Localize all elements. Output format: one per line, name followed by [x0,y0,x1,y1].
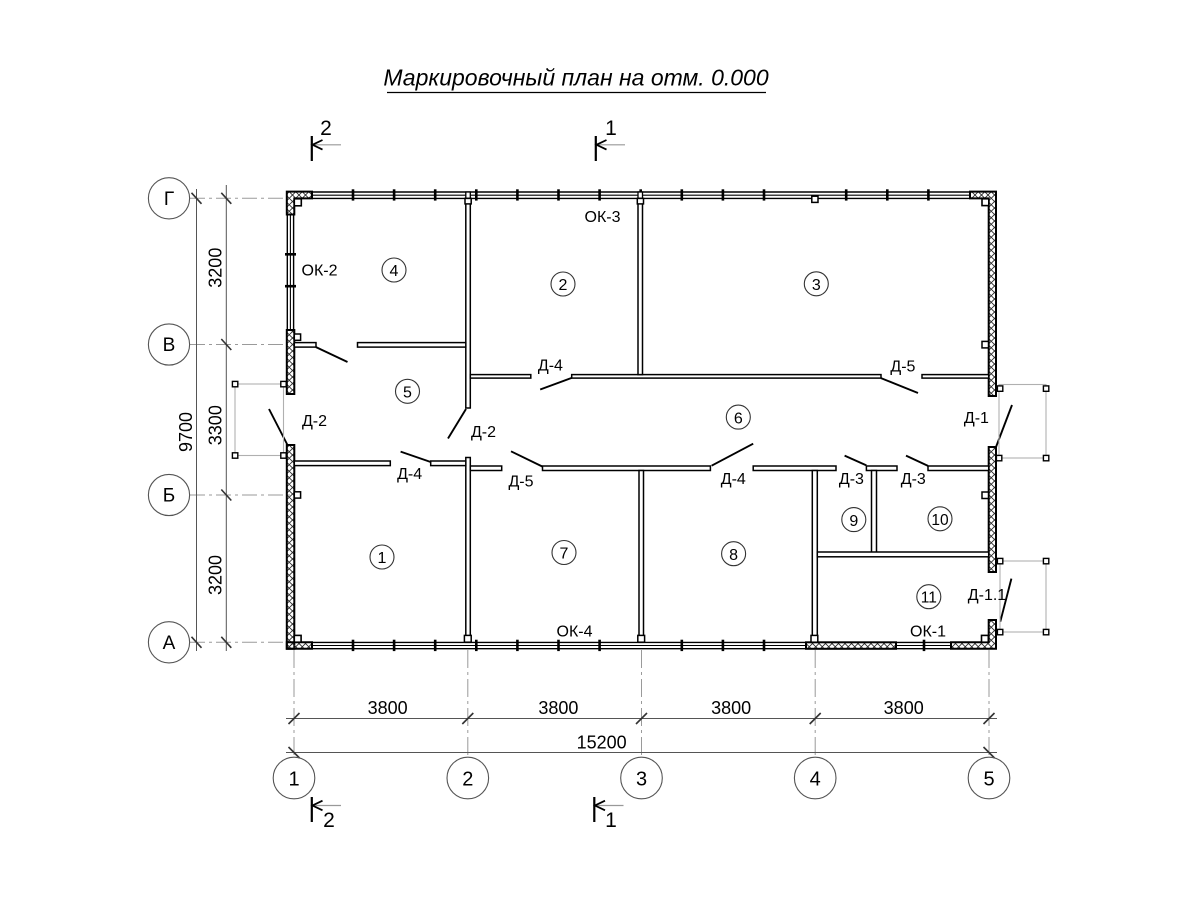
svg-text:Д-4: Д-4 [397,466,422,483]
svg-text:3800: 3800 [711,698,751,718]
svg-text:3800: 3800 [368,698,408,718]
svg-text:7: 7 [560,545,569,562]
svg-text:Маркировочный план на отм. 0.0: Маркировочный план на отм. 0.000 [383,65,768,91]
svg-text:9700: 9700 [176,412,196,452]
svg-text:11: 11 [921,590,937,607]
svg-text:Д-3: Д-3 [839,471,864,488]
svg-text:ОК-3: ОК-3 [585,209,621,226]
svg-text:1: 1 [378,550,387,567]
svg-text:15200: 15200 [577,732,627,752]
svg-text:Д-2: Д-2 [302,413,327,430]
svg-text:Г: Г [164,189,174,210]
svg-text:Д-4: Д-4 [721,471,746,488]
svg-text:3200: 3200 [206,555,226,595]
svg-text:ОК-1: ОК-1 [910,623,946,640]
svg-text:Д-3: Д-3 [901,471,926,488]
svg-text:3300: 3300 [206,405,226,445]
svg-text:ОК-2: ОК-2 [302,262,338,279]
svg-text:1: 1 [605,117,617,140]
svg-text:2: 2 [462,768,473,790]
svg-text:9: 9 [849,513,858,530]
svg-text:3: 3 [812,277,821,294]
svg-text:2: 2 [320,117,332,140]
svg-text:Д-5: Д-5 [890,358,915,375]
svg-text:ОК-4: ОК-4 [557,623,593,640]
svg-text:3800: 3800 [538,698,578,718]
svg-text:Д-4: Д-4 [538,357,563,374]
svg-text:5: 5 [403,385,412,402]
svg-text:6: 6 [734,410,743,427]
svg-text:1: 1 [288,768,299,790]
svg-text:4: 4 [390,263,399,280]
svg-text:1: 1 [605,809,617,832]
svg-text:Д-2: Д-2 [471,424,496,441]
svg-text:Б: Б [163,486,175,507]
svg-text:Д-1: Д-1 [964,410,989,427]
svg-text:А: А [163,633,176,654]
svg-text:Д-1.1: Д-1.1 [968,587,1007,604]
svg-text:3200: 3200 [206,248,226,288]
svg-text:2: 2 [323,809,335,832]
svg-text:В: В [163,335,176,356]
svg-text:3800: 3800 [884,698,924,718]
svg-text:Д-5: Д-5 [508,474,533,491]
svg-text:5: 5 [983,768,994,790]
svg-text:4: 4 [810,768,821,790]
svg-text:8: 8 [729,547,738,564]
svg-text:3: 3 [636,768,647,790]
svg-text:2: 2 [559,277,568,294]
svg-text:10: 10 [931,512,949,529]
